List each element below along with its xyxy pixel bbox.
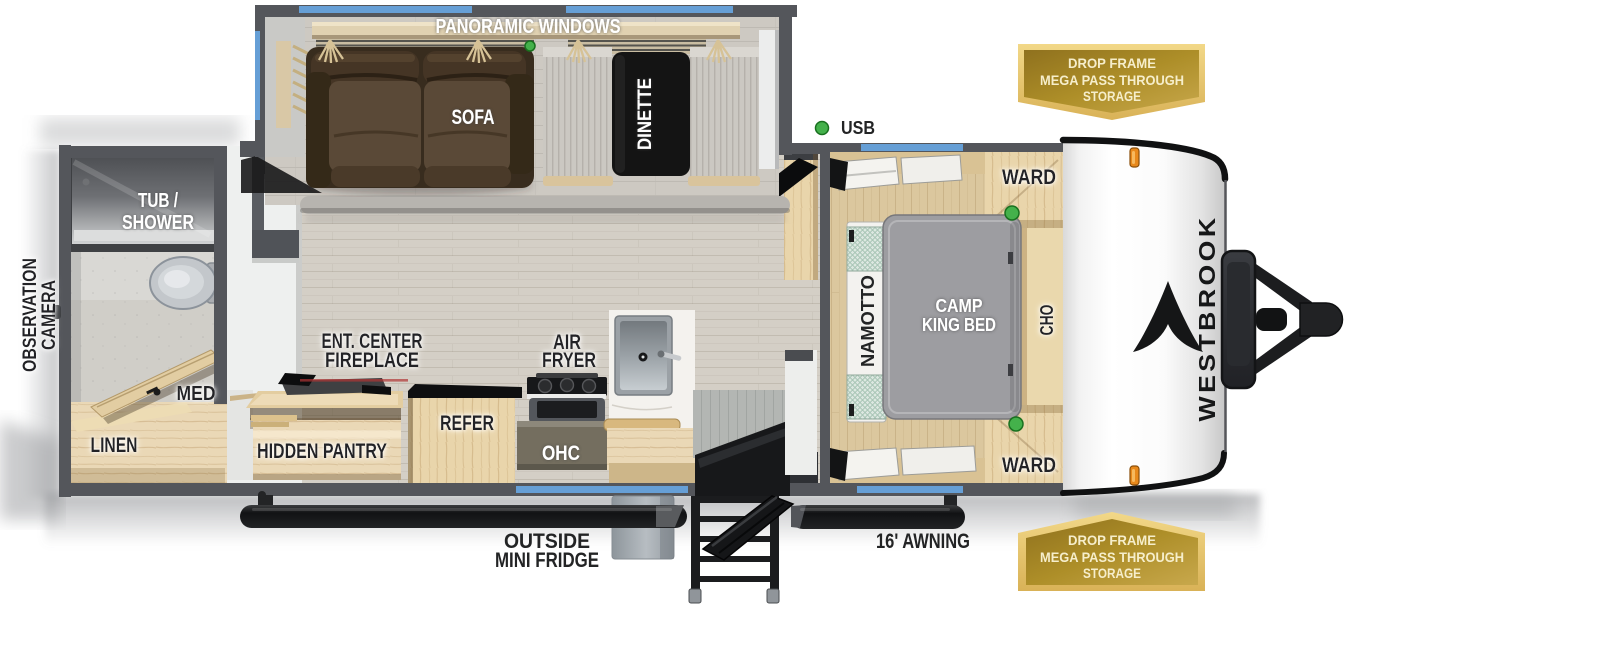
svg-text:DINETTE: DINETTE bbox=[635, 78, 656, 150]
svg-text:MEGA PASS THROUGH: MEGA PASS THROUGH bbox=[1040, 549, 1184, 565]
svg-text:FIREPLACE: FIREPLACE bbox=[325, 349, 419, 372]
svg-text:OBSERVATION: OBSERVATION bbox=[20, 258, 41, 372]
svg-text:CAMERA: CAMERA bbox=[39, 280, 60, 350]
svg-text:USB: USB bbox=[841, 118, 875, 138]
svg-text:KING BED: KING BED bbox=[922, 315, 996, 335]
svg-text:MEGA PASS THROUGH: MEGA PASS THROUGH bbox=[1040, 72, 1184, 88]
svg-text:NAMOTTO: NAMOTTO bbox=[858, 275, 878, 367]
svg-text:OHC: OHC bbox=[542, 442, 580, 465]
svg-text:STORAGE: STORAGE bbox=[1083, 88, 1141, 104]
svg-text:WESTBROOK: WESTBROOK bbox=[1194, 215, 1220, 422]
svg-text:LINEN: LINEN bbox=[91, 434, 138, 457]
svg-text:REFER: REFER bbox=[440, 412, 494, 435]
svg-text:MINI FRIDGE: MINI FRIDGE bbox=[495, 549, 599, 572]
svg-text:TUB /: TUB / bbox=[138, 190, 178, 212]
svg-text:STORAGE: STORAGE bbox=[1083, 565, 1141, 581]
svg-text:HIDDEN PANTRY: HIDDEN PANTRY bbox=[257, 440, 387, 463]
svg-text:SOFA: SOFA bbox=[452, 106, 495, 129]
svg-text:FRYER: FRYER bbox=[542, 349, 596, 372]
svg-text:DROP FRAME: DROP FRAME bbox=[1068, 532, 1156, 548]
svg-text:WARD: WARD bbox=[1002, 454, 1056, 477]
svg-text:DROP FRAME: DROP FRAME bbox=[1068, 55, 1156, 71]
svg-text:CHO: CHO bbox=[1037, 305, 1057, 336]
svg-text:MED: MED bbox=[177, 383, 216, 405]
svg-text:CAMP: CAMP bbox=[936, 296, 983, 316]
svg-text:SHOWER: SHOWER bbox=[122, 212, 194, 234]
svg-text:16' AWNING: 16' AWNING bbox=[876, 530, 970, 553]
svg-text:WARD: WARD bbox=[1002, 166, 1056, 189]
svg-text:PANORAMIC WINDOWS: PANORAMIC WINDOWS bbox=[436, 16, 621, 38]
